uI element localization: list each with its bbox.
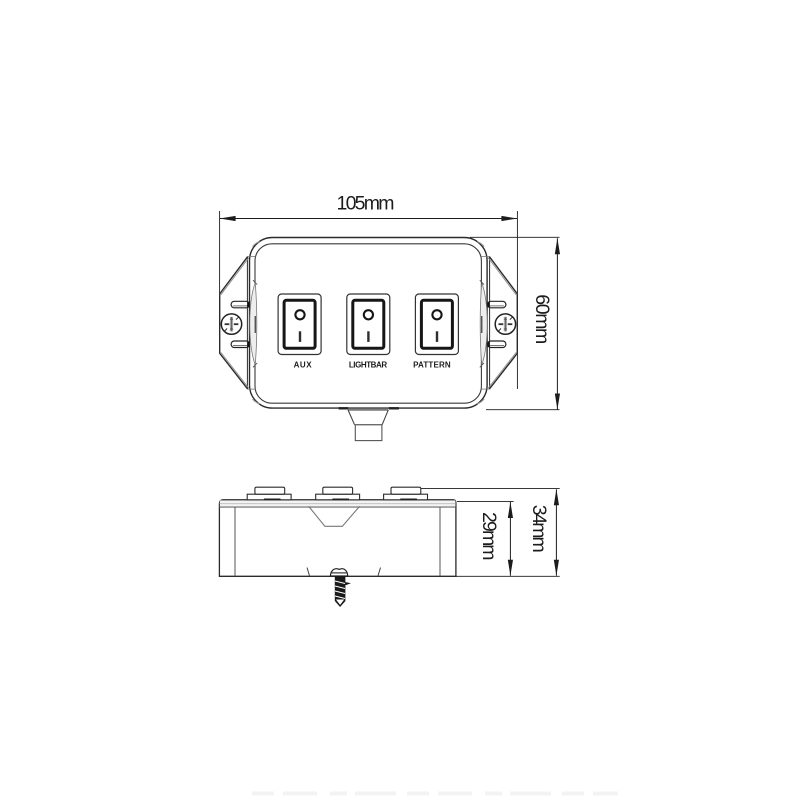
svg-text:105mm: 105mm xyxy=(337,193,395,215)
svg-text:PATTERN: PATTERN xyxy=(413,360,451,369)
svg-text:29mm: 29mm xyxy=(478,512,500,561)
svg-text:60mm: 60mm xyxy=(531,294,553,344)
svg-text:AUX: AUX xyxy=(294,360,313,369)
svg-text:LIGHTBAR: LIGHTBAR xyxy=(349,360,388,369)
svg-text:34mm: 34mm xyxy=(528,505,550,553)
